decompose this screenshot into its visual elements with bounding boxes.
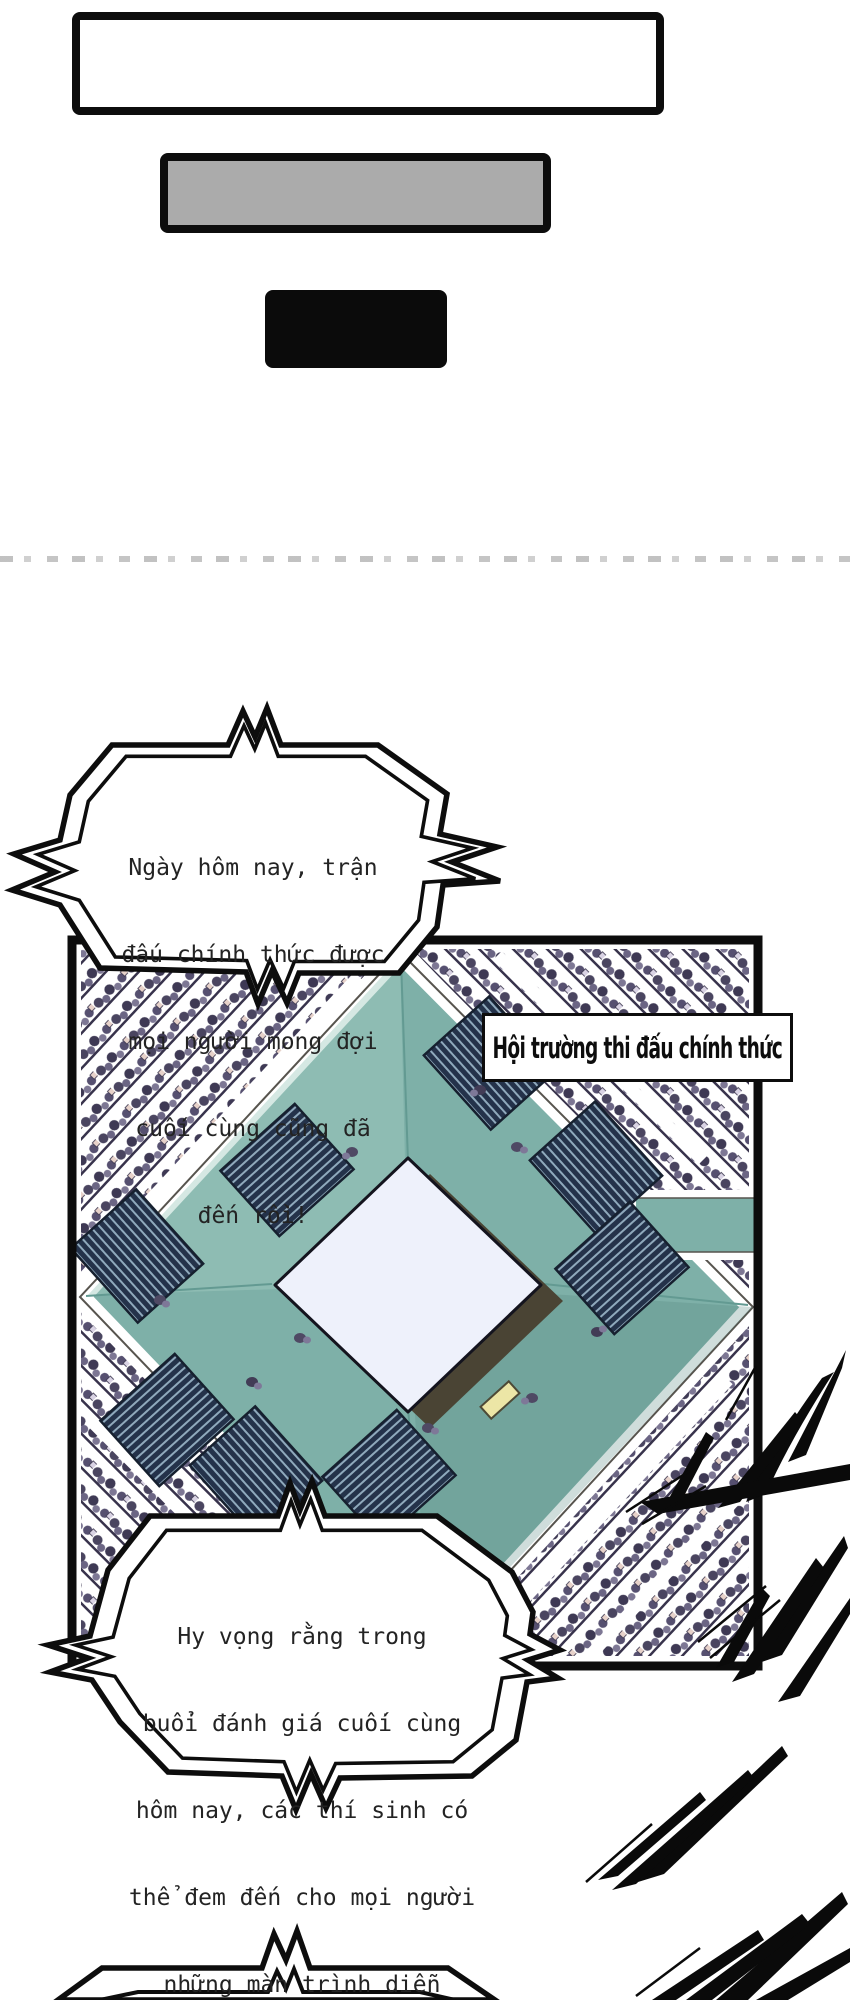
bubble1-line: đấu chính thức được (88, 941, 418, 970)
arena-label-box: Hội trường thi đấu chính thức (482, 1013, 793, 1082)
comic-page: Hội trường thi đấu chính thức Ngày hôm n… (0, 0, 850, 2000)
bubble2-line: hôm nay, các thí sinh có (122, 1797, 482, 1826)
bubble2-line: Hy vọng rằng trong (122, 1623, 482, 1652)
arena-label-text: Hội trường thi đấu chính thức (493, 1031, 783, 1065)
bubble1-line: mọi người mong đợi (88, 1028, 418, 1057)
speech-bubble-2-text: Hy vọng rằng trong buổi đánh giá cuối cù… (122, 1565, 482, 2000)
bubble1-line: đến rồi! (88, 1202, 418, 1231)
bubble2-line: những màn trình diễn (122, 1971, 482, 2000)
bubble1-line: cuối cùng cũng đã (88, 1115, 418, 1144)
bubble2-line: buổi đánh giá cuối cùng (122, 1710, 482, 1739)
bubble2-line: thể đem đến cho mọi người (122, 1884, 482, 1913)
speech-bubble-1-text: Ngày hôm nay, trận đấu chính thức được m… (88, 796, 418, 1289)
bubble1-line: Ngày hôm nay, trận (88, 854, 418, 883)
